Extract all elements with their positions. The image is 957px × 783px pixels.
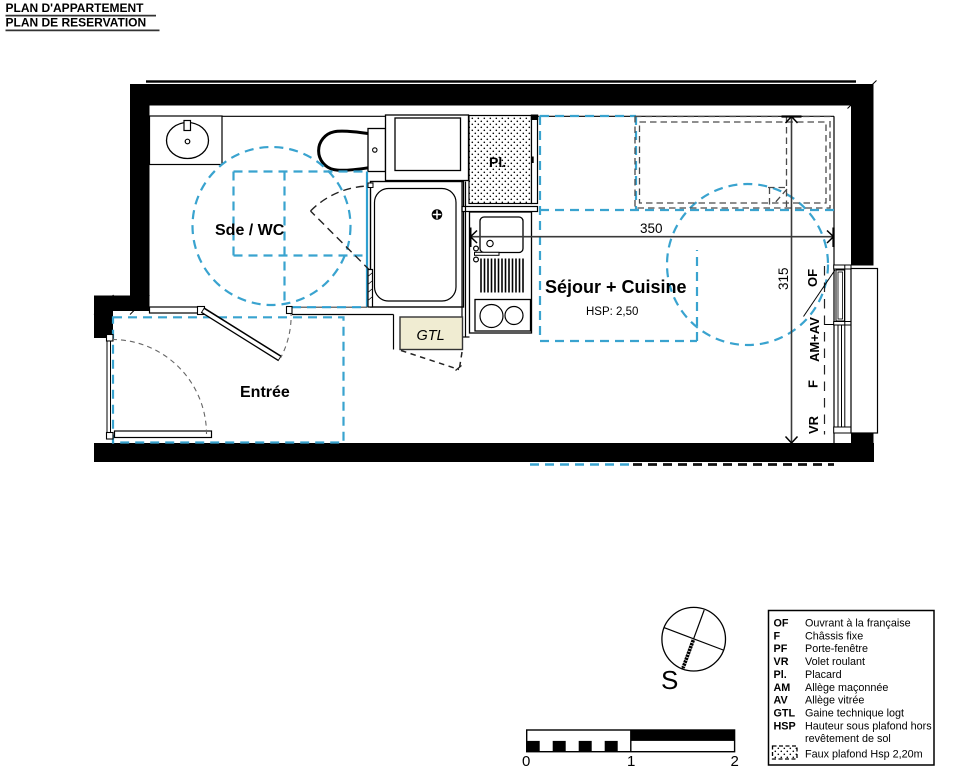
- svg-text:1: 1: [627, 753, 635, 770]
- svg-text:AM: AM: [774, 682, 791, 694]
- svg-text:HSP: HSP: [774, 720, 796, 732]
- svg-text:Pl.: Pl.: [489, 154, 506, 170]
- svg-text:Ouvrant à la française: Ouvrant à la française: [805, 618, 911, 630]
- svg-text:Châssis fixe: Châssis fixe: [805, 630, 863, 642]
- svg-text:AM+AV: AM+AV: [807, 317, 822, 362]
- svg-text:OF: OF: [805, 269, 820, 287]
- svg-text:S: S: [661, 665, 678, 695]
- svg-text:HSP: 2,50: HSP: 2,50: [586, 306, 638, 318]
- svg-text:315: 315: [776, 267, 791, 290]
- svg-text:0: 0: [522, 753, 530, 770]
- svg-text:PLAN D'APPARTEMENT: PLAN D'APPARTEMENT: [6, 1, 145, 15]
- svg-text:AV: AV: [774, 695, 789, 707]
- svg-text:Allège maçonnée: Allège maçonnée: [805, 682, 888, 694]
- svg-text:Placard: Placard: [805, 669, 842, 681]
- svg-text:F: F: [806, 380, 821, 388]
- svg-text:Volet roulant: Volet roulant: [805, 656, 865, 668]
- svg-text:2: 2: [731, 753, 739, 770]
- svg-text:PLAN DE RESERVATION: PLAN DE RESERVATION: [6, 16, 147, 30]
- svg-text:Séjour + Cuisine: Séjour + Cuisine: [545, 277, 687, 297]
- svg-text:Sde / WC: Sde / WC: [215, 222, 285, 239]
- svg-text:VR: VR: [806, 415, 821, 434]
- svg-text:Entrée: Entrée: [240, 384, 290, 401]
- svg-text:Pl.: Pl.: [774, 669, 787, 681]
- svg-text:Hauteur sous plafond hors: Hauteur sous plafond hors: [805, 720, 932, 732]
- svg-text:OF: OF: [774, 618, 789, 630]
- svg-text:350: 350: [640, 221, 663, 236]
- svg-text:F: F: [774, 630, 781, 642]
- svg-text:Gaine technique logt: Gaine technique logt: [805, 708, 904, 720]
- svg-text:GTL: GTL: [417, 328, 445, 344]
- svg-text:GTL: GTL: [774, 708, 796, 720]
- svg-text:Faux plafond Hsp 2,20m: Faux plafond Hsp 2,20m: [805, 749, 923, 761]
- svg-text:Porte-fenêtre: Porte-fenêtre: [805, 643, 868, 655]
- svg-text:PF: PF: [774, 643, 788, 655]
- svg-text:Allège vitrée: Allège vitrée: [805, 695, 864, 707]
- svg-text:VR: VR: [774, 656, 789, 668]
- svg-text:revêtement de sol: revêtement de sol: [805, 733, 891, 745]
